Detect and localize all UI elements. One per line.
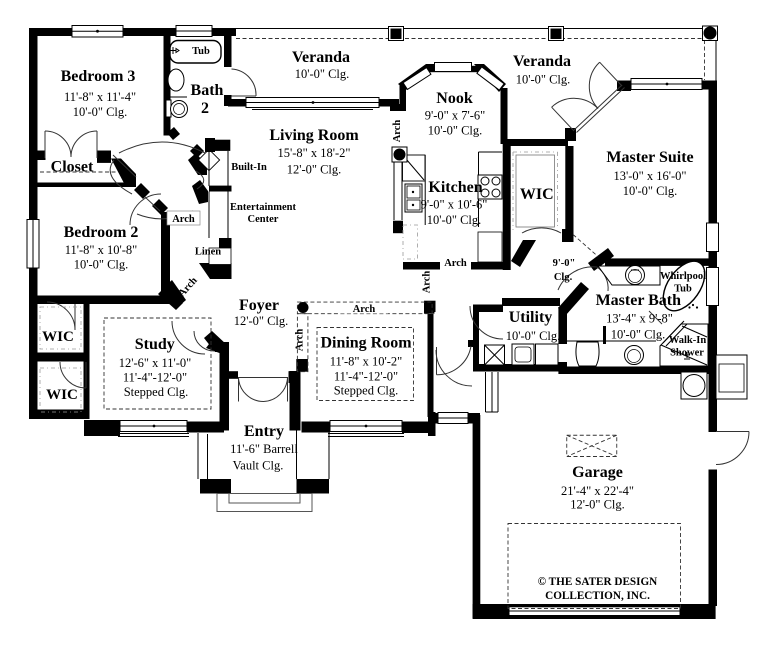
svg-text:Tub: Tub bbox=[674, 284, 692, 295]
svg-text:Arch: Arch bbox=[172, 214, 195, 225]
svg-text:10'-0" Clg.: 10'-0" Clg. bbox=[623, 184, 678, 198]
svg-text:Veranda: Veranda bbox=[513, 53, 571, 70]
svg-text:10'-0" Clg.: 10'-0" Clg. bbox=[295, 67, 350, 81]
svg-text:Study: Study bbox=[135, 336, 175, 353]
svg-text:Master Suite: Master Suite bbox=[606, 149, 693, 166]
svg-text:Arch: Arch bbox=[392, 120, 403, 143]
svg-text:COLLECTION, INC.: COLLECTION, INC. bbox=[545, 590, 650, 602]
svg-text:Kitchen: Kitchen bbox=[428, 179, 482, 196]
svg-text:21'-4" x 22'-4": 21'-4" x 22'-4" bbox=[561, 484, 634, 498]
svg-text:Living Room: Living Room bbox=[269, 127, 359, 144]
svg-text:Bath: Bath bbox=[191, 82, 224, 99]
svg-text:10'-0" Clg.: 10'-0" Clg. bbox=[506, 329, 561, 343]
svg-text:10'-0" Clg.: 10'-0" Clg. bbox=[73, 105, 128, 119]
svg-text:11'-8" x 10'-8": 11'-8" x 10'-8" bbox=[65, 243, 138, 257]
svg-text:Entry: Entry bbox=[244, 423, 284, 440]
svg-text:12'-0" Clg.: 12'-0" Clg. bbox=[570, 498, 625, 512]
svg-text:Stepped Clg.: Stepped Clg. bbox=[124, 385, 189, 399]
svg-text:11'-8" x 11'-4": 11'-8" x 11'-4" bbox=[64, 90, 136, 104]
svg-text:WIC: WIC bbox=[520, 186, 554, 203]
svg-text:Linen: Linen bbox=[195, 247, 221, 258]
svg-text:11'-8" x 10'-2": 11'-8" x 10'-2" bbox=[330, 355, 403, 369]
svg-text:Walk-In: Walk-In bbox=[669, 335, 707, 346]
svg-text:Garage: Garage bbox=[572, 464, 623, 481]
svg-text:Whirlpool: Whirlpool bbox=[660, 271, 706, 282]
svg-text:Bedroom 2: Bedroom 2 bbox=[64, 224, 139, 241]
svg-text:10'-0" Clg.: 10'-0" Clg. bbox=[74, 258, 129, 272]
svg-text:Center: Center bbox=[248, 214, 279, 225]
svg-text:Arch: Arch bbox=[295, 329, 306, 352]
svg-text:© THE SATER DESIGN: © THE SATER DESIGN bbox=[538, 576, 658, 588]
svg-text:2: 2 bbox=[201, 100, 209, 117]
svg-text:12'-6" x 11'-0": 12'-6" x 11'-0" bbox=[119, 356, 192, 370]
svg-text:9'-0" x 10'-6": 9'-0" x 10'-6" bbox=[421, 198, 488, 212]
svg-text:Arch: Arch bbox=[444, 258, 467, 269]
svg-text:9'-0" x 7'-6": 9'-0" x 7'-6" bbox=[425, 109, 486, 123]
svg-text:Arch: Arch bbox=[422, 271, 433, 294]
svg-text:Master Bath: Master Bath bbox=[596, 292, 682, 309]
svg-text:Arch: Arch bbox=[353, 304, 376, 315]
svg-text:10'-0" Clg.: 10'-0" Clg. bbox=[428, 124, 483, 138]
svg-text:15'-8" x 18'-2": 15'-8" x 18'-2" bbox=[277, 146, 350, 160]
svg-text:WIC: WIC bbox=[42, 329, 74, 345]
svg-text:Closet: Closet bbox=[51, 159, 94, 176]
svg-text:10'-0" Clg.: 10'-0" Clg. bbox=[516, 73, 571, 87]
svg-text:Veranda: Veranda bbox=[292, 49, 350, 66]
svg-text:12'-0" Clg.: 12'-0" Clg. bbox=[287, 163, 342, 177]
svg-text:Foyer: Foyer bbox=[239, 297, 279, 314]
svg-text:Built-In: Built-In bbox=[231, 162, 267, 173]
svg-text:Entertainment: Entertainment bbox=[230, 202, 296, 213]
svg-text:10'-0" Clg.: 10'-0" Clg. bbox=[427, 213, 482, 227]
svg-text:13'-0" x 16'-0": 13'-0" x 16'-0" bbox=[613, 169, 686, 183]
svg-text:11'-6" Barrell: 11'-6" Barrell bbox=[230, 442, 298, 456]
svg-text:11'-4"-12'-0": 11'-4"-12'-0" bbox=[123, 371, 187, 385]
svg-text:Shower: Shower bbox=[670, 348, 704, 359]
svg-text:13'-4" x 9'-8": 13'-4" x 9'-8" bbox=[606, 311, 673, 325]
svg-text:Dining Room: Dining Room bbox=[320, 335, 412, 352]
svg-text:WIC: WIC bbox=[46, 387, 78, 403]
svg-text:Utility: Utility bbox=[509, 309, 553, 326]
svg-text:Tub: Tub bbox=[192, 46, 210, 57]
svg-text:11'-4"-12'-0": 11'-4"-12'-0" bbox=[334, 369, 398, 383]
svg-text:12'-0" Clg.: 12'-0" Clg. bbox=[234, 314, 289, 328]
svg-text:Stepped Clg.: Stepped Clg. bbox=[334, 384, 399, 398]
svg-text:9'-0": 9'-0" bbox=[553, 258, 576, 269]
svg-text:Clg.: Clg. bbox=[554, 272, 573, 283]
svg-text:Vault Clg.: Vault Clg. bbox=[233, 459, 284, 473]
svg-text:Bedroom 3: Bedroom 3 bbox=[61, 68, 136, 85]
svg-text:Nook: Nook bbox=[436, 90, 473, 107]
svg-text:10'-0" Clg.: 10'-0" Clg. bbox=[611, 328, 666, 342]
